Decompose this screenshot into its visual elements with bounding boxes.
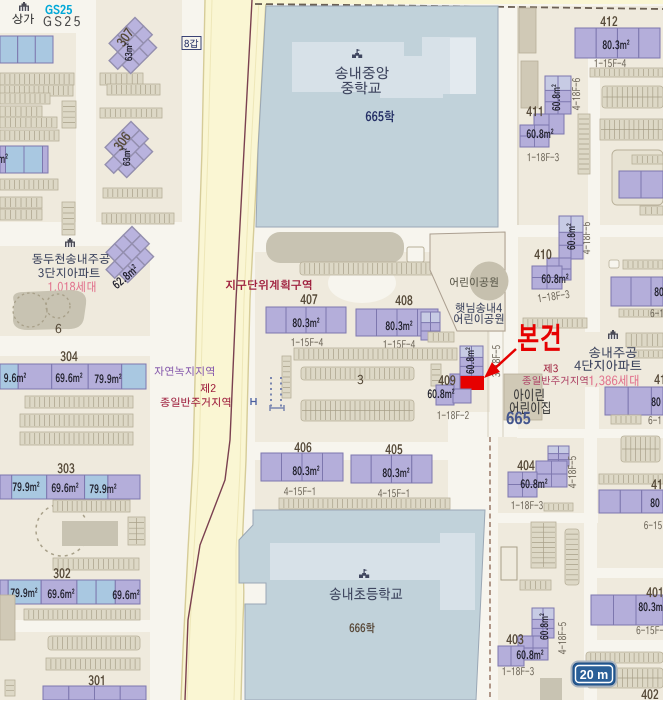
- svg-text:20 m: 20 m: [580, 668, 609, 682]
